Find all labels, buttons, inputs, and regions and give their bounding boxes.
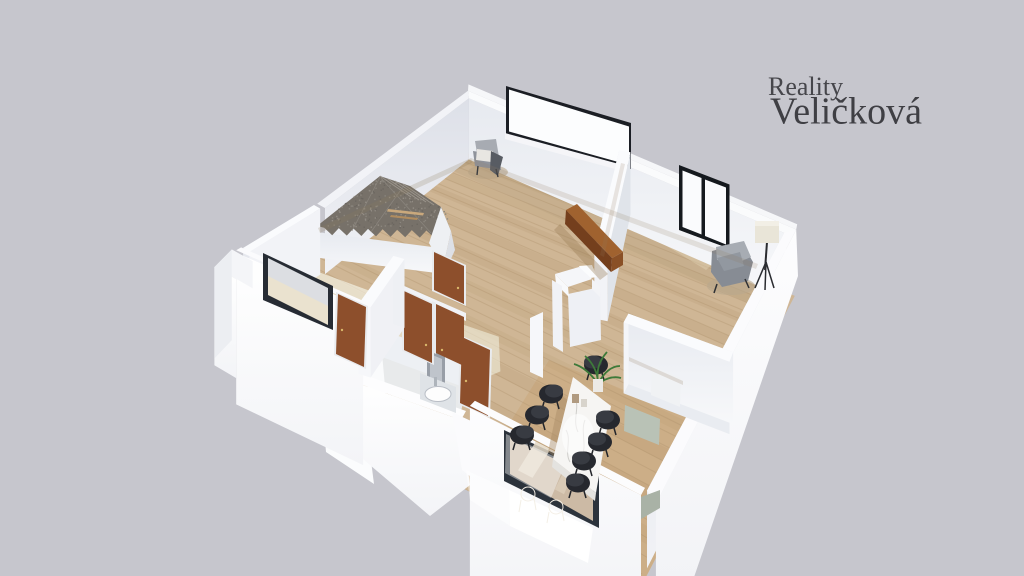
- svg-text:Veličková: Veličková: [770, 91, 922, 133]
